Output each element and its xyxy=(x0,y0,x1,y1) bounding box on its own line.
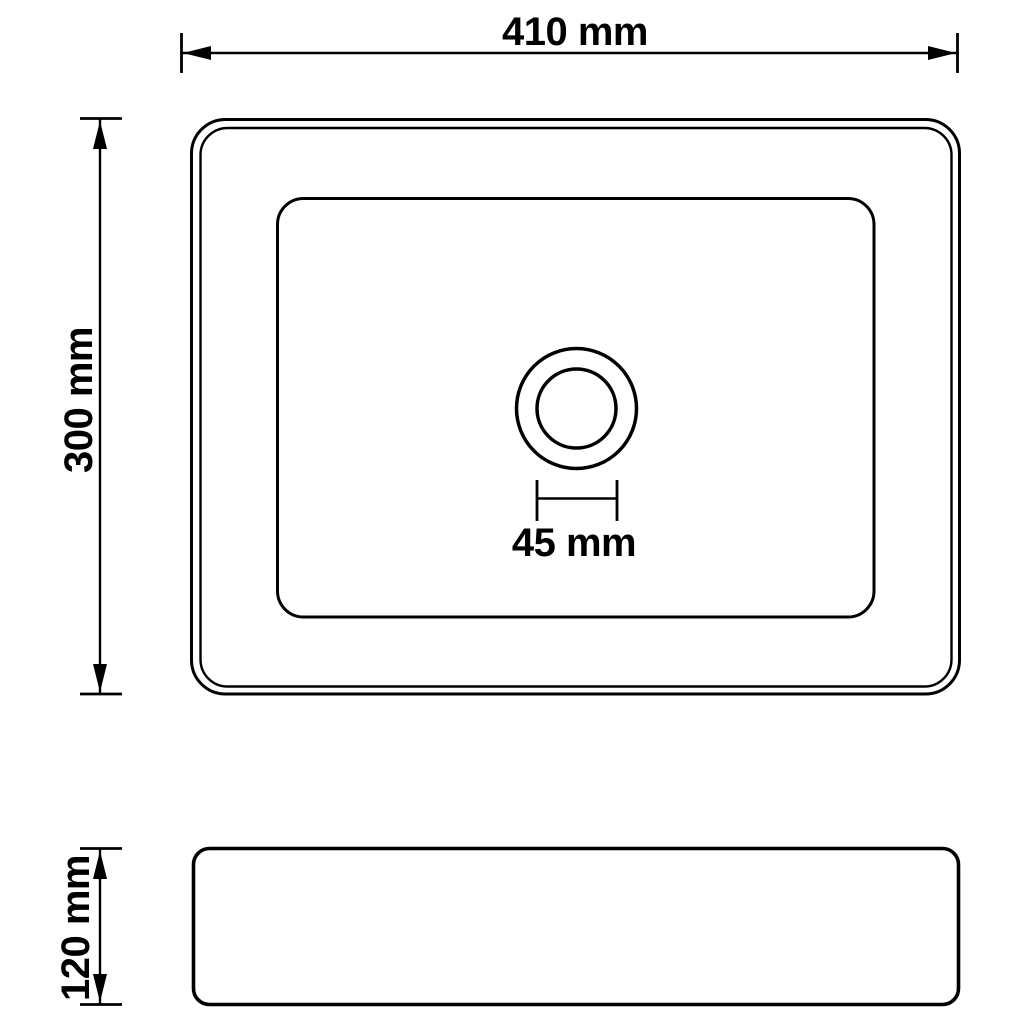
width-dimension-label: 410 mm xyxy=(502,10,648,54)
width-right-arrowhead-icon xyxy=(928,46,956,60)
height-dimension-label: 120 mm xyxy=(54,855,98,1001)
drain-inner-circle xyxy=(537,369,616,448)
drawing-canvas: 410 mm 45 mm 300 mm xyxy=(0,0,1024,1024)
top-view-rim-inner-edge xyxy=(201,128,952,687)
depth-bottom-arrowhead-icon xyxy=(93,664,107,692)
side-view-outline xyxy=(194,849,959,1005)
height-dimension: 120 mm xyxy=(54,849,122,1005)
drain-outer-circle xyxy=(517,349,637,469)
depth-dimension-label: 300 mm xyxy=(57,327,101,473)
top-view-outer-edge xyxy=(192,120,960,695)
depth-top-arrowhead-icon xyxy=(93,121,107,149)
width-left-arrowhead-icon xyxy=(183,46,211,60)
top-view xyxy=(192,120,960,695)
width-dimension: 410 mm xyxy=(182,10,958,73)
drain-dimension-label: 45 mm xyxy=(512,521,636,565)
sink-technical-drawing: 410 mm 45 mm 300 mm xyxy=(0,0,1024,1024)
side-view xyxy=(194,849,959,1005)
drain-dimension: 45 mm xyxy=(512,480,636,565)
depth-dimension: 300 mm xyxy=(57,119,122,695)
